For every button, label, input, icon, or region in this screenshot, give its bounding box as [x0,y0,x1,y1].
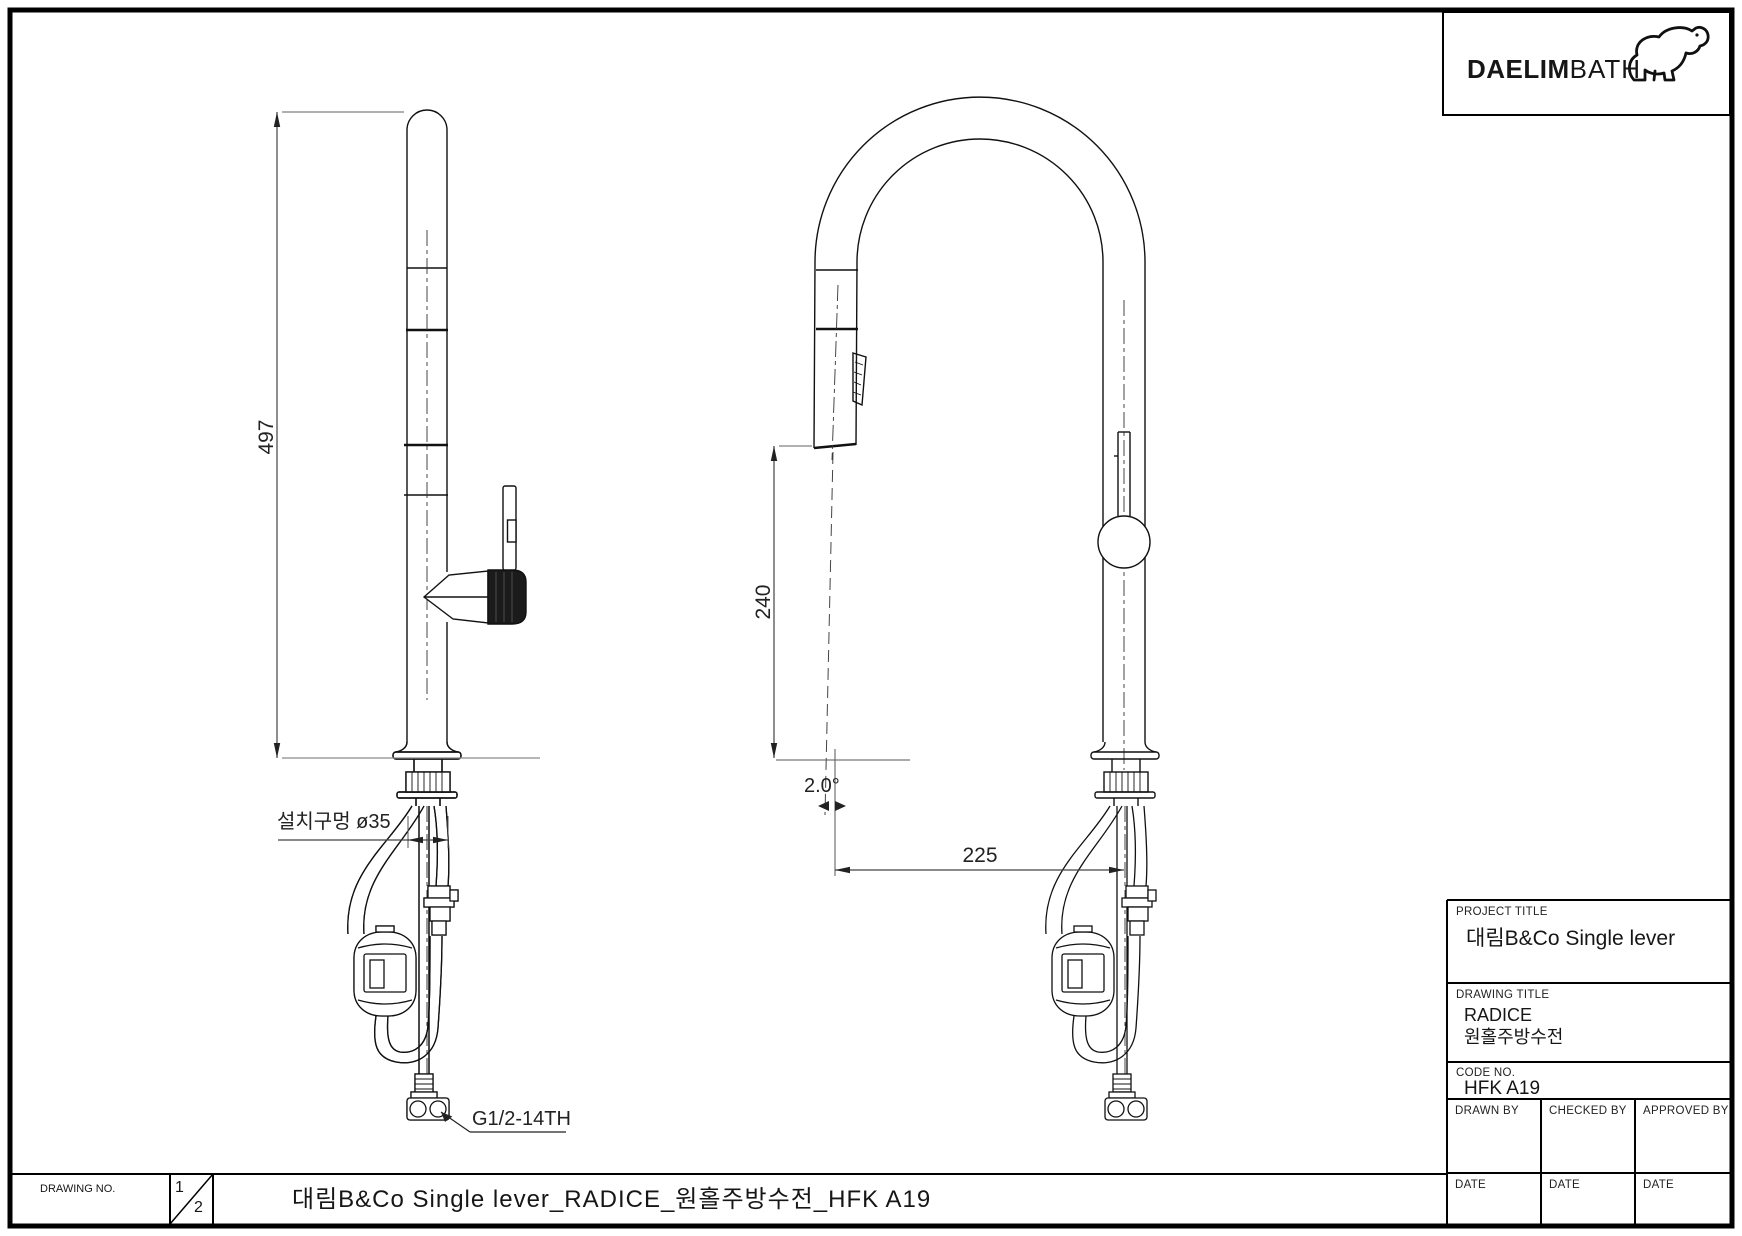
dimension-height-label: 497 [256,407,278,467]
faucet-side-view [404,110,526,742]
faucet-front-view [814,97,1150,815]
sheet-number-total: 2 [194,1200,203,1217]
side-view-base [393,742,461,806]
drawing-no-label: DRAWING NO. [40,1184,115,1196]
date-label-checked: DATE [1549,1179,1580,1191]
polar-bear-logo-icon [1629,27,1708,80]
drawing-linework [0,0,1742,1236]
front-view-base [1091,742,1159,806]
mounting-hole-label: 설치구멍 ø35 [277,812,391,833]
sheet-number-current: 1 [175,1180,184,1197]
dimension-angle-label: 2.0° [804,776,840,797]
drawing-title-label: DRAWING TITLE [1456,989,1549,1001]
drawn-by-label: DRAWN BY [1455,1105,1519,1117]
drawing-title-line2: 원홀주방수전 [1464,1028,1563,1047]
checked-by-label: CHECKED BY [1549,1105,1627,1117]
date-label-approved: DATE [1643,1179,1674,1191]
brand-logo-text: DAELIMBATH [1467,56,1641,83]
approved-by-label: APPROVED BY [1643,1105,1729,1117]
drawing-title-line1: RADICE [1464,1006,1532,1025]
project-title-label: PROJECT TITLE [1456,906,1548,918]
drawing-sheet: DAELIMBATH 497 240 225 2.0° 설치구멍 ø35 G1/… [0,0,1742,1236]
project-title-value: 대림B&Co Single lever [1466,928,1675,950]
dimension-spout-drop-label: 240 [753,572,775,632]
side-view-undersink [348,806,458,1120]
thread-spec-label: G1/2-14TH [472,1109,571,1130]
sheet-title: 대림B&Co Single lever_RADICE_원홀주방수전_HFK A1… [292,1187,931,1212]
date-label-drawn: DATE [1455,1179,1486,1191]
dimension-reach-label: 225 [940,845,1020,867]
brand-name-bold: DAELIM [1467,54,1570,84]
brand-name-light: BATH [1570,54,1641,84]
code-no-value: HFK A19 [1464,1079,1540,1099]
front-view-undersink [1046,806,1156,1120]
